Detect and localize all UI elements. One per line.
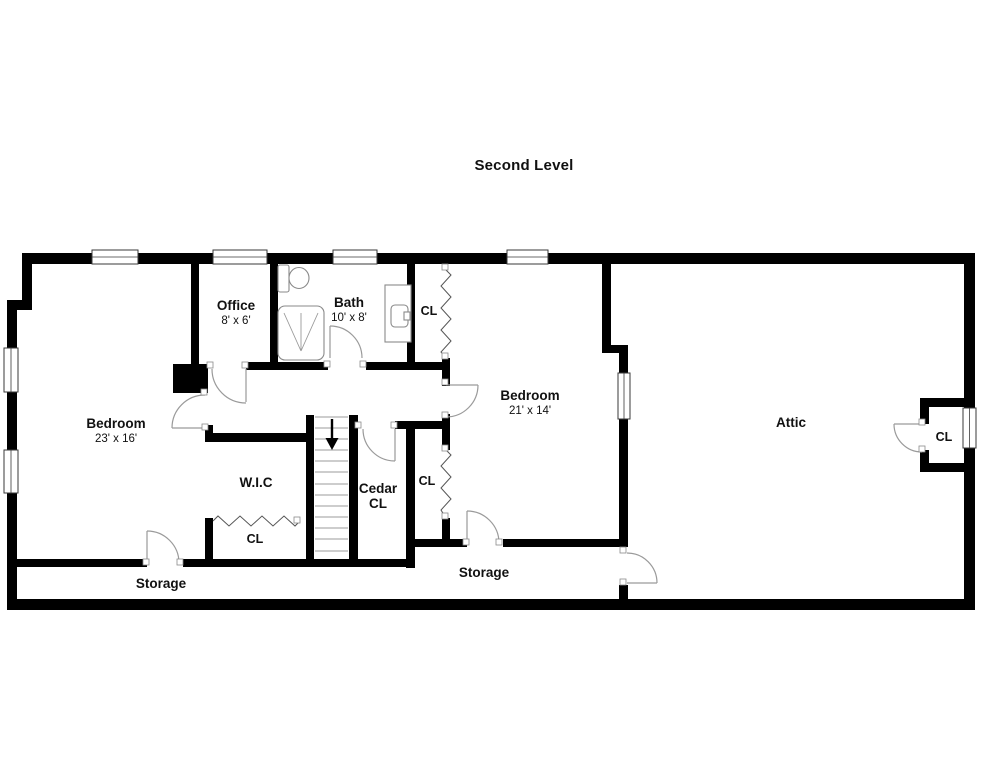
window [618, 373, 630, 419]
wall-segment [7, 559, 147, 567]
room-label-bedroom-left: Bedroom [86, 416, 145, 431]
room-label-bedroom-right: Bedroom [500, 388, 559, 403]
stair-wall-right [349, 415, 358, 562]
wall-segment [395, 421, 450, 429]
room-label-bath: Bath [334, 295, 364, 310]
wall-segment [503, 539, 628, 547]
room-label-attic: Attic [776, 415, 806, 430]
room-label-office: Office [217, 298, 256, 313]
window [92, 250, 138, 264]
zigzag-line [213, 516, 300, 526]
floor-plan-page: Second Level [0, 0, 1000, 772]
room-label-closet-wic: CL [247, 532, 264, 546]
stair-down-arrow-icon [326, 419, 339, 450]
room-label-storage-right: Storage [459, 565, 510, 580]
room-label-cedar-line1: Cedar [359, 481, 398, 496]
window [4, 450, 18, 493]
floor-plan-canvas: Second Level [0, 0, 1000, 772]
toilet-icon [278, 265, 309, 292]
windows [4, 250, 976, 493]
zigzag-line [441, 450, 451, 518]
attic-storage-door [627, 553, 657, 583]
window [4, 348, 18, 392]
wall-segment [246, 362, 328, 370]
office-door [212, 369, 246, 403]
bath-door [330, 326, 362, 358]
wall-segment [7, 599, 975, 610]
window [213, 250, 267, 264]
bedroom-left-door [172, 395, 205, 428]
window [333, 250, 377, 264]
attic-closet-door [894, 424, 922, 452]
wall-segment [602, 262, 611, 353]
shower-icon [278, 306, 324, 360]
window [963, 408, 976, 448]
zigzag-line [441, 270, 451, 358]
room-label-storage-left: Storage [136, 576, 187, 591]
wall-segment [205, 433, 314, 442]
wall-segment [191, 262, 199, 366]
wall-segment [183, 559, 412, 567]
wall-segment [22, 253, 32, 308]
room-label-closet-hall: CL [421, 304, 438, 318]
storage-right-door [467, 511, 499, 543]
window [507, 250, 548, 264]
wall-segment [619, 345, 628, 373]
wall-segment [22, 253, 975, 264]
sink-vanity-icon [385, 285, 411, 342]
wall-segment [406, 539, 467, 547]
cedar-closet-door [363, 429, 395, 461]
room-label-closet-attic: CL [936, 430, 953, 444]
outer-walls [7, 253, 975, 610]
room-label-wic: W.I.C [240, 475, 273, 490]
room-dims-bedroom-right: 21' x 14' [509, 405, 551, 417]
room-dims-bath: 10' x 8' [331, 312, 367, 324]
bedroom-right-door [446, 385, 478, 417]
wall-segment [366, 362, 450, 370]
room-label-cedar-line2: CL [369, 496, 387, 511]
staircase [315, 417, 348, 551]
storage-left-door [147, 531, 179, 563]
room-label-closet-mid: CL [419, 474, 436, 488]
room-dims-office: 8' x 6' [221, 315, 250, 327]
page-title: Second Level [474, 157, 573, 174]
interior-walls [7, 262, 964, 599]
room-dims-bedroom-left: 23' x 16' [95, 433, 137, 445]
wall-segment [920, 463, 964, 472]
wall-segment [619, 585, 628, 599]
wall-segment [619, 419, 628, 546]
wall-segment [270, 262, 278, 366]
stair-wall-left [306, 415, 314, 562]
